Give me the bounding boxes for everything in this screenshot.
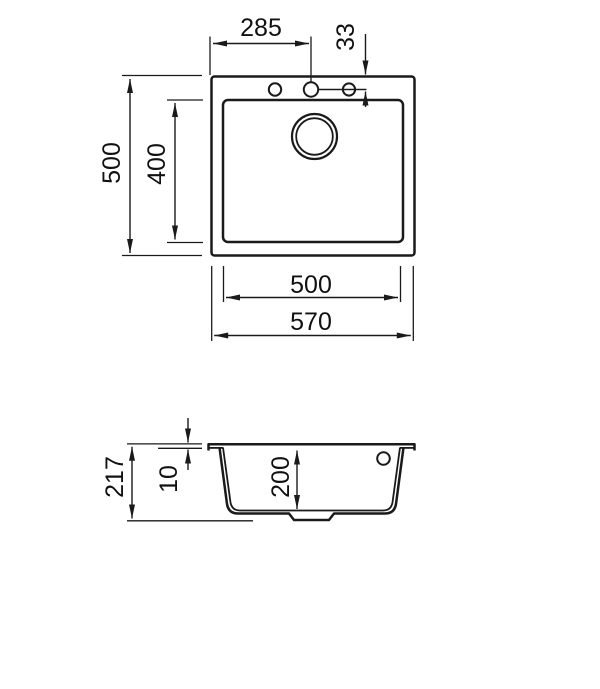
sink-technical-drawing: 285 33 500 400 500 570 [0, 0, 600, 689]
dim-label-33: 33 [332, 23, 360, 51]
drain-outer-ring [292, 114, 337, 159]
dim-label-10: 10 [155, 465, 183, 493]
drawing-canvas: 285 33 500 400 500 570 [0, 0, 600, 689]
plan-outer-edge [212, 77, 415, 256]
dim-label-500-left: 500 [98, 142, 126, 184]
section-bowl-inner-wall [223, 448, 400, 511]
section-view: 217 10 200 [101, 418, 415, 521]
faucet-hole-center [304, 82, 318, 96]
drain-inner-ring [296, 118, 333, 155]
faucet-hole-left [269, 83, 281, 95]
dim-label-217: 217 [101, 456, 129, 498]
dim-label-200: 200 [267, 456, 295, 498]
section-rim-top [209, 444, 415, 450]
dim-label-500-bottom: 500 [290, 271, 332, 299]
section-bowl-outer-wall [220, 448, 404, 521]
dim-label-285: 285 [240, 14, 282, 42]
overflow-hole [377, 452, 390, 465]
plan-bowl-edge [223, 100, 403, 242]
plan-view: 285 33 500 400 500 570 [98, 14, 415, 341]
dim-label-400: 400 [143, 143, 171, 185]
dim-label-570: 570 [290, 308, 332, 336]
